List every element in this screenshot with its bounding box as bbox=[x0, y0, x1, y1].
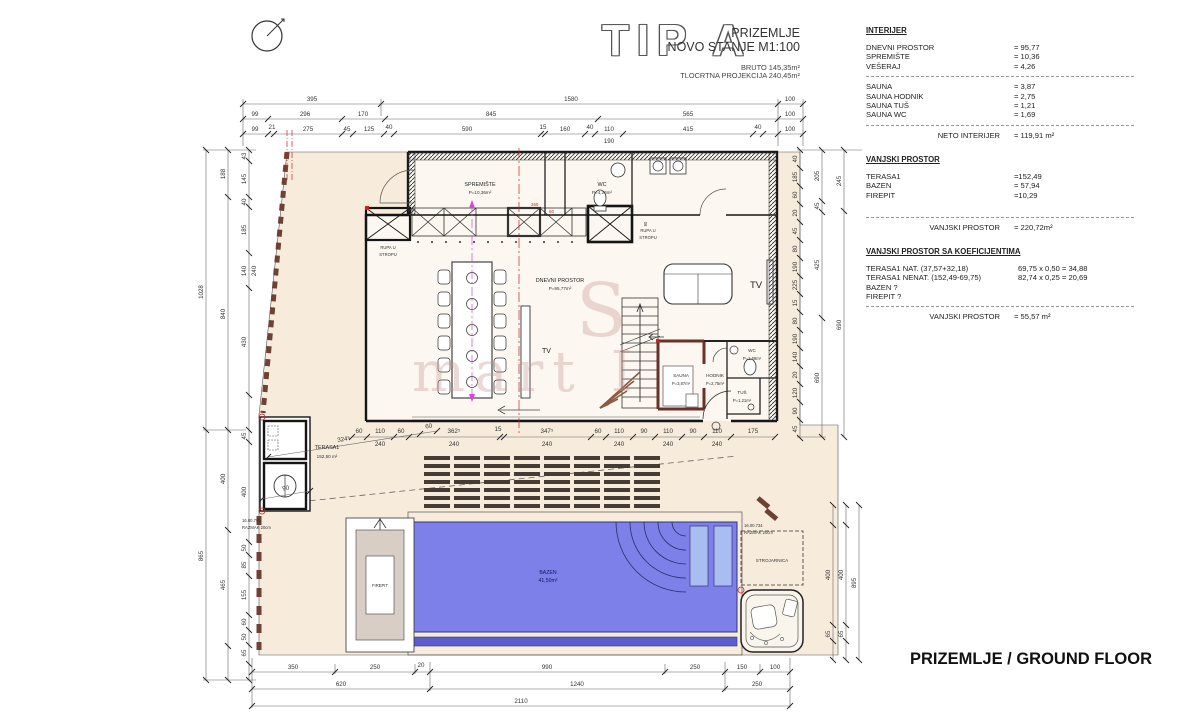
dim-label: 90 bbox=[643, 221, 648, 226]
room-label-hodnik: HODNIK bbox=[706, 373, 725, 378]
dim-label: 2110 bbox=[514, 698, 528, 705]
room-label-strojarnica: STROJARNICA bbox=[756, 558, 789, 563]
plan-sheet: 395 1580 100 99 296 170 845 565 100 99 2… bbox=[0, 0, 1200, 717]
table-heading: VANJSKI PROSTOR SA KOEFICIJENTIMA bbox=[866, 247, 1134, 256]
red-dim: 60 bbox=[549, 209, 554, 214]
dim-label: 565 bbox=[683, 111, 694, 118]
table-separator bbox=[866, 76, 1134, 77]
dim-label: 15 bbox=[540, 124, 547, 131]
dim-label: 250 bbox=[690, 664, 701, 671]
row-label: VEŠERAJ bbox=[866, 62, 1014, 71]
table-separator bbox=[866, 125, 1134, 126]
dim-label: 100 bbox=[785, 111, 796, 118]
dim-label: 150 bbox=[737, 664, 748, 671]
tv-label: TV bbox=[542, 348, 551, 355]
row-calc bbox=[1018, 292, 1134, 301]
row-label: FIREPIT bbox=[866, 191, 1014, 200]
row-label: SAUNA HODNIK bbox=[866, 92, 1014, 101]
dim-label: 21 bbox=[269, 124, 276, 131]
dim-label: 690 bbox=[814, 372, 821, 383]
row-value: = 95,77 bbox=[1014, 43, 1134, 52]
total-label: NETO INTERIJER bbox=[866, 131, 1014, 141]
room-label-rupa: STROPU bbox=[379, 252, 396, 257]
dim-label: 240 bbox=[251, 265, 258, 276]
row-label: FIREPIT ? bbox=[866, 292, 1018, 301]
dim-label: 45 bbox=[344, 126, 351, 133]
dim-label: 40 bbox=[241, 198, 248, 205]
dim-label: 110 bbox=[663, 428, 673, 435]
table-vanjski: VANJSKI PROSTOR TERASA1=152,49 BAZEN= 57… bbox=[866, 155, 1134, 233]
dim-label: 840 bbox=[220, 308, 227, 319]
table-row: SAUNA= 3,87 bbox=[866, 82, 1134, 91]
dim-label: 185 bbox=[792, 171, 799, 182]
dim-label: 65 bbox=[825, 630, 832, 637]
dim-label: 60 bbox=[356, 428, 363, 435]
table-koeficijenti: VANJSKI PROSTOR SA KOEFICIJENTIMA TERASA… bbox=[866, 247, 1134, 322]
dim-label: 225 bbox=[792, 279, 799, 290]
pool-bench bbox=[690, 526, 708, 586]
dim-label: 895 bbox=[851, 577, 858, 588]
dim-label: 350 bbox=[288, 664, 299, 671]
total-label: VANJSKI PROSTOR bbox=[866, 223, 1014, 233]
dim-label: 65 bbox=[241, 649, 248, 656]
dim-label: 85 bbox=[241, 561, 248, 568]
dim-label: 590 bbox=[462, 126, 473, 133]
room-area: P=3,87m² bbox=[672, 381, 691, 386]
sink-icon bbox=[730, 346, 738, 354]
dim-label: 15 bbox=[495, 426, 502, 433]
table-row: BAZEN= 57,94 bbox=[866, 181, 1134, 190]
row-label: BAZEN ? bbox=[866, 283, 1018, 292]
dim-label: 188 bbox=[220, 168, 227, 179]
table-total-row: NETO INTERIJER= 119,91 m² bbox=[866, 131, 1134, 141]
dim-label: 240 bbox=[663, 441, 674, 448]
table-row: SPREMIŠTE= 10,36 bbox=[866, 52, 1134, 61]
dim-label: 155 bbox=[241, 589, 248, 600]
room-area: P=4,26m² bbox=[592, 190, 613, 195]
table-separator bbox=[866, 217, 1134, 218]
row-label: TERASA1 bbox=[866, 172, 1014, 181]
room-label-sauna: SAUNA bbox=[673, 373, 690, 378]
dim-label: 1028 bbox=[198, 285, 205, 299]
row-value: = 1,69 bbox=[1014, 110, 1134, 119]
row-value: = 1,21 bbox=[1014, 101, 1134, 110]
hot-tub bbox=[738, 587, 803, 652]
dim-label: 43 bbox=[241, 152, 248, 159]
table-row: SAUNA TUŠ= 1,21 bbox=[866, 101, 1134, 110]
dim-label: 120 bbox=[792, 387, 799, 398]
room-area: P=1,69m² bbox=[743, 356, 762, 361]
room-label-firepit: FIREPIT bbox=[372, 583, 388, 588]
total-value: = 119,91 m² bbox=[1014, 131, 1134, 141]
room-area: P=95,77m² bbox=[549, 286, 572, 291]
dim-label: 125 bbox=[364, 126, 375, 133]
dim-label: 395 bbox=[307, 96, 318, 103]
row-label: TERASA1 NAT. (37,57+32,18) bbox=[866, 264, 1018, 273]
room-area: P=10,36m² bbox=[469, 190, 492, 195]
room-area: 152,50 m² bbox=[317, 454, 338, 459]
floor-label: PRIZEMLJE bbox=[640, 26, 800, 40]
dim-label: 45 bbox=[814, 202, 821, 209]
total-value: = 220,72m² bbox=[1014, 223, 1134, 233]
sheet-footer-title: PRIZEMLJE / GROUND FLOOR bbox=[900, 650, 1152, 669]
dim-label: 1240 bbox=[570, 681, 584, 688]
dim-label: 40 bbox=[792, 155, 799, 162]
dims-left: 1028 865 188 840 400 465 43 145 40 185 1… bbox=[198, 147, 258, 683]
dim-label: 60 bbox=[595, 428, 602, 435]
dim-label: 240 bbox=[375, 441, 386, 448]
row-label: SAUNA WC bbox=[866, 110, 1014, 119]
row-label: SPREMIŠTE bbox=[866, 52, 1014, 61]
dim-label: 415 bbox=[683, 126, 694, 133]
table-row: DNEVNI PROSTOR= 95,77 bbox=[866, 43, 1134, 52]
dim-label: 100 bbox=[785, 126, 796, 133]
row-value: = 10,36 bbox=[1014, 52, 1134, 61]
row-value: =152,49 bbox=[1014, 172, 1134, 181]
dim-label: 185 bbox=[241, 224, 248, 235]
dim-label: 60 bbox=[241, 618, 248, 625]
dim-label: 205 bbox=[814, 170, 821, 181]
dim-label: 865 bbox=[198, 550, 205, 561]
note-mark: RAZMAK 20cm bbox=[744, 530, 773, 535]
dim-label: 190 bbox=[792, 261, 799, 272]
dim-label: 845 bbox=[486, 111, 497, 118]
row-calc: 69,75 x 0,50 = 34,88 bbox=[1018, 264, 1134, 273]
dim-label: 45 bbox=[792, 425, 799, 432]
pool-water bbox=[413, 522, 737, 632]
left-annex bbox=[259, 414, 310, 514]
dim-label: 15 bbox=[792, 299, 799, 306]
dim-label: 50 bbox=[241, 633, 248, 640]
row-label: BAZEN bbox=[866, 181, 1014, 190]
dim-label: 40 bbox=[386, 124, 393, 131]
dim-label: 240 bbox=[449, 441, 460, 448]
row-value: = 57,94 bbox=[1014, 181, 1134, 190]
dim-label: 145 bbox=[241, 173, 248, 184]
dim-label: 20 bbox=[792, 209, 799, 216]
dim-label: 90 bbox=[792, 407, 799, 414]
dim-label: 465 bbox=[220, 579, 227, 590]
dim-label: 140 bbox=[792, 351, 799, 362]
table-row: VEŠERAJ= 4,26 bbox=[866, 62, 1134, 71]
dim-label: 690 bbox=[836, 319, 843, 330]
total-label: VANJSKI PROSTOR bbox=[866, 312, 1014, 322]
dim-label: 90 bbox=[690, 428, 697, 435]
dim-label: 140 bbox=[241, 265, 248, 276]
row-label: DNEVNI PROSTOR bbox=[866, 43, 1014, 52]
dim-label: 110 bbox=[604, 126, 614, 133]
table-heading: VANJSKI PROSTOR bbox=[866, 155, 1134, 164]
dim-label: 245 bbox=[836, 175, 843, 186]
dim-label: 275 bbox=[303, 126, 314, 133]
dim-label: 296 bbox=[300, 111, 311, 118]
row-calc: 82,74 x 0,25 = 20,69 bbox=[1018, 273, 1134, 282]
dim-label: 160 bbox=[560, 126, 571, 133]
room-area: P=1,21m² bbox=[733, 398, 752, 403]
table-row: TERASA1 NAT. (37,57+32,18)69,75 x 0,50 =… bbox=[866, 264, 1134, 273]
dim-label: 400 bbox=[825, 569, 832, 580]
room-area: 41,50m² bbox=[538, 578, 557, 584]
dim-label: 1580 bbox=[564, 96, 578, 103]
dim-label: 110 bbox=[614, 428, 624, 435]
dim-label: 20 bbox=[418, 662, 425, 669]
dim-label: 990 bbox=[542, 664, 553, 671]
dim-label: 60 bbox=[792, 191, 799, 198]
projection-label: TLOCRTNA PROJEKCIJA 240,45m² bbox=[640, 72, 800, 81]
dim-label: 400 bbox=[241, 486, 248, 497]
dim-label: 80 bbox=[792, 245, 799, 252]
tv-wall bbox=[521, 306, 530, 398]
dims-top: 395 1580 100 99 296 170 845 565 100 99 2… bbox=[240, 96, 806, 146]
basin-icon bbox=[611, 163, 625, 177]
dims-bottom: 350 250 20 990 250 150 100 620 1240 250 … bbox=[249, 658, 793, 709]
area-tables: INTERIJER DNEVNI PROSTOR= 95,77 SPREMIŠT… bbox=[866, 26, 1134, 322]
room-label-rupa: RUPA U bbox=[380, 245, 395, 250]
dim-label: 100 bbox=[785, 96, 796, 103]
dim-label: 80 bbox=[792, 317, 799, 324]
dim-label: 40 bbox=[755, 124, 762, 131]
dim-label: 400 bbox=[220, 473, 227, 484]
room-label-tus: TUŠ bbox=[737, 389, 746, 395]
row-value: = 2,75 bbox=[1014, 92, 1134, 101]
note-mark: RAZMAK 20cm bbox=[242, 525, 271, 530]
table-interijer: INTERIJER DNEVNI PROSTOR= 95,77 SPREMIŠT… bbox=[866, 26, 1134, 141]
note-mark: 16.00.734 bbox=[744, 523, 763, 528]
row-value: = 3,87 bbox=[1014, 82, 1134, 91]
dim-label: 60 bbox=[398, 428, 405, 435]
dim-label: 250 bbox=[752, 681, 763, 688]
house-fill-main bbox=[366, 215, 777, 421]
dim-label: 190 bbox=[792, 333, 799, 344]
table-total-row: VANJSKI PROSTOR= 220,72m² bbox=[866, 223, 1134, 233]
house bbox=[365, 152, 777, 430]
dim-label: 240 bbox=[542, 441, 553, 448]
table-separator bbox=[866, 306, 1134, 307]
dim-label: 45 bbox=[241, 432, 248, 439]
dim-label: 110 bbox=[375, 428, 385, 435]
dim-label: 90 bbox=[641, 428, 648, 435]
note-mark: 16.00.790 bbox=[242, 518, 261, 523]
dim-label: 175 bbox=[748, 428, 759, 435]
dim-label: 99 bbox=[252, 111, 259, 118]
table-row: FIREPIT=10,29 bbox=[866, 191, 1134, 200]
dim-label: 40 bbox=[587, 124, 594, 131]
table-row: TERASA1=152,49 bbox=[866, 172, 1134, 181]
tv-label: TV bbox=[750, 280, 763, 291]
north-arrow-icon bbox=[252, 19, 284, 51]
title-block: PRIZEMLJE NOVO STANJE M1:100 BRUTO 145,3… bbox=[640, 26, 800, 81]
total-value: = 55,57 m² bbox=[1014, 312, 1134, 322]
row-calc bbox=[1018, 283, 1134, 292]
row-value: =10,29 bbox=[1014, 191, 1134, 200]
room-label-terasa: TERASA1 bbox=[315, 445, 340, 451]
row-label: TERASA1 NENAT. (152,49-69,75) bbox=[866, 273, 1018, 282]
dim-label: 347⁵ bbox=[541, 428, 554, 435]
pool-bench bbox=[714, 526, 732, 586]
room-area: P=2,75m² bbox=[706, 381, 725, 386]
dim-label: 190 bbox=[604, 138, 615, 145]
room-label-bazen: BAZEN bbox=[539, 570, 557, 576]
room-label-wc-top: WC bbox=[598, 182, 607, 188]
dim-label: 430 bbox=[241, 336, 248, 347]
table-row: TERASA1 NENAT. (152,49-69,75)82,74 x 0,2… bbox=[866, 273, 1134, 282]
table-row: SAUNA WC= 1,69 bbox=[866, 110, 1134, 119]
toilet-icon bbox=[744, 359, 756, 375]
table-heading: INTERIJER bbox=[866, 26, 1134, 35]
couch bbox=[664, 264, 732, 304]
dim-label: 240 bbox=[712, 441, 723, 448]
room-label-dnevni: DNEVNI PROSTOR bbox=[536, 278, 585, 284]
dim-label: 170 bbox=[358, 111, 369, 118]
dim-label: 362⁵ bbox=[448, 428, 461, 435]
table-row: SAUNA HODNIK= 2,75 bbox=[866, 92, 1134, 101]
dim-label: 50 bbox=[241, 544, 248, 551]
dim-label: 250 bbox=[370, 664, 381, 671]
state-scale-label: NOVO STANJE M1:100 bbox=[640, 40, 800, 54]
dim-label: 425 bbox=[814, 259, 821, 270]
row-label: SAUNA bbox=[866, 82, 1014, 91]
room-label-spremiste: SPREMIŠTE bbox=[464, 181, 496, 188]
row-value: = 4,26 bbox=[1014, 62, 1134, 71]
dim-label: 110 bbox=[712, 428, 722, 435]
row-label: SAUNA TUŠ bbox=[866, 101, 1014, 110]
dim-label: 45 bbox=[792, 227, 799, 234]
table-row: FIREPIT ? bbox=[866, 292, 1134, 301]
dim-label: 99 bbox=[252, 126, 259, 133]
dim-label: 620 bbox=[336, 681, 347, 688]
dim-label: 20 bbox=[792, 371, 799, 378]
dim-label: 100 bbox=[770, 664, 781, 671]
red-dim: 260 bbox=[531, 202, 539, 207]
table-total-row: VANJSKI PROSTOR= 55,57 m² bbox=[866, 312, 1134, 322]
table-row: BAZEN ? bbox=[866, 283, 1134, 292]
dim-label: 400 bbox=[838, 569, 845, 580]
room-label-wc: WC bbox=[748, 348, 756, 353]
dim-label: 65 bbox=[838, 630, 845, 637]
room-label-rupa: RUPA U bbox=[640, 228, 655, 233]
dim-label: 240 bbox=[614, 441, 625, 448]
pool-overflow-band bbox=[413, 637, 737, 646]
sauna-stove-icon bbox=[686, 394, 698, 407]
room-label-rupa: STROPU bbox=[639, 235, 656, 240]
